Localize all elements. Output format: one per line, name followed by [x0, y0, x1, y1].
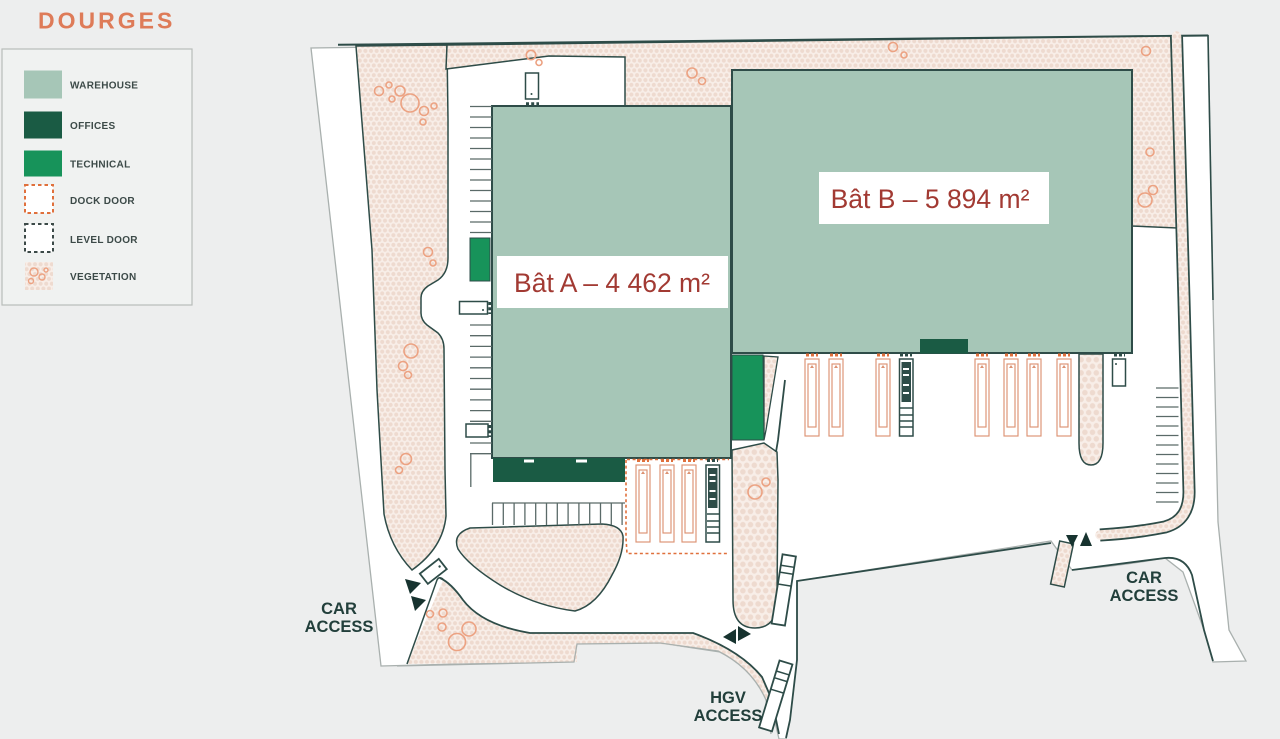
svg-text:VEGETATION: VEGETATION: [70, 272, 137, 283]
svg-text:ACCESS: ACCESS: [305, 618, 374, 636]
svg-text:ACCESS: ACCESS: [694, 707, 763, 725]
svg-text:CAR: CAR: [321, 600, 357, 618]
svg-text:OFFICES: OFFICES: [70, 121, 115, 132]
svg-text:LEVEL DOOR: LEVEL DOOR: [70, 235, 138, 246]
svg-text:Bât B – 5 894 m²: Bât B – 5 894 m²: [831, 184, 1030, 214]
svg-text:TECHNICAL: TECHNICAL: [70, 160, 130, 171]
svg-text:Bât A – 4 462 m²: Bât A – 4 462 m²: [514, 268, 710, 298]
svg-text:WAREHOUSE: WAREHOUSE: [70, 81, 138, 92]
svg-text:CAR: CAR: [1126, 569, 1162, 587]
svg-text:HGV: HGV: [710, 689, 746, 707]
svg-text:DOURGES: DOURGES: [38, 8, 175, 34]
svg-text:DOCK DOOR: DOCK DOOR: [70, 196, 135, 207]
svg-text:ACCESS: ACCESS: [1110, 587, 1179, 605]
